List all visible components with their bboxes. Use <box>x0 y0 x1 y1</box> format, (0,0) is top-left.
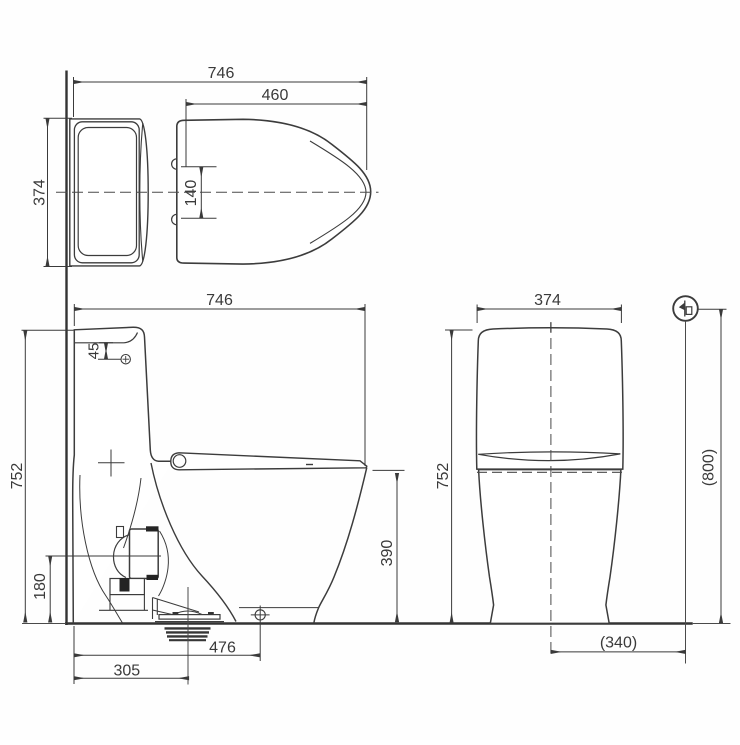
svg-text:752: 752 <box>9 463 26 490</box>
svg-text:476: 476 <box>209 639 236 656</box>
svg-text:460: 460 <box>262 87 289 104</box>
svg-text:374: 374 <box>32 179 49 206</box>
svg-text:752: 752 <box>435 463 452 490</box>
svg-text:390: 390 <box>379 540 396 567</box>
svg-text:(340): (340) <box>600 635 637 652</box>
svg-text:140: 140 <box>183 180 200 207</box>
svg-text:45: 45 <box>86 343 103 360</box>
svg-text:374: 374 <box>534 292 561 309</box>
svg-text:305: 305 <box>113 662 140 679</box>
svg-text:746: 746 <box>208 65 235 82</box>
svg-text:746: 746 <box>206 292 233 309</box>
svg-text:180: 180 <box>32 573 49 600</box>
svg-text:(800): (800) <box>701 449 718 486</box>
